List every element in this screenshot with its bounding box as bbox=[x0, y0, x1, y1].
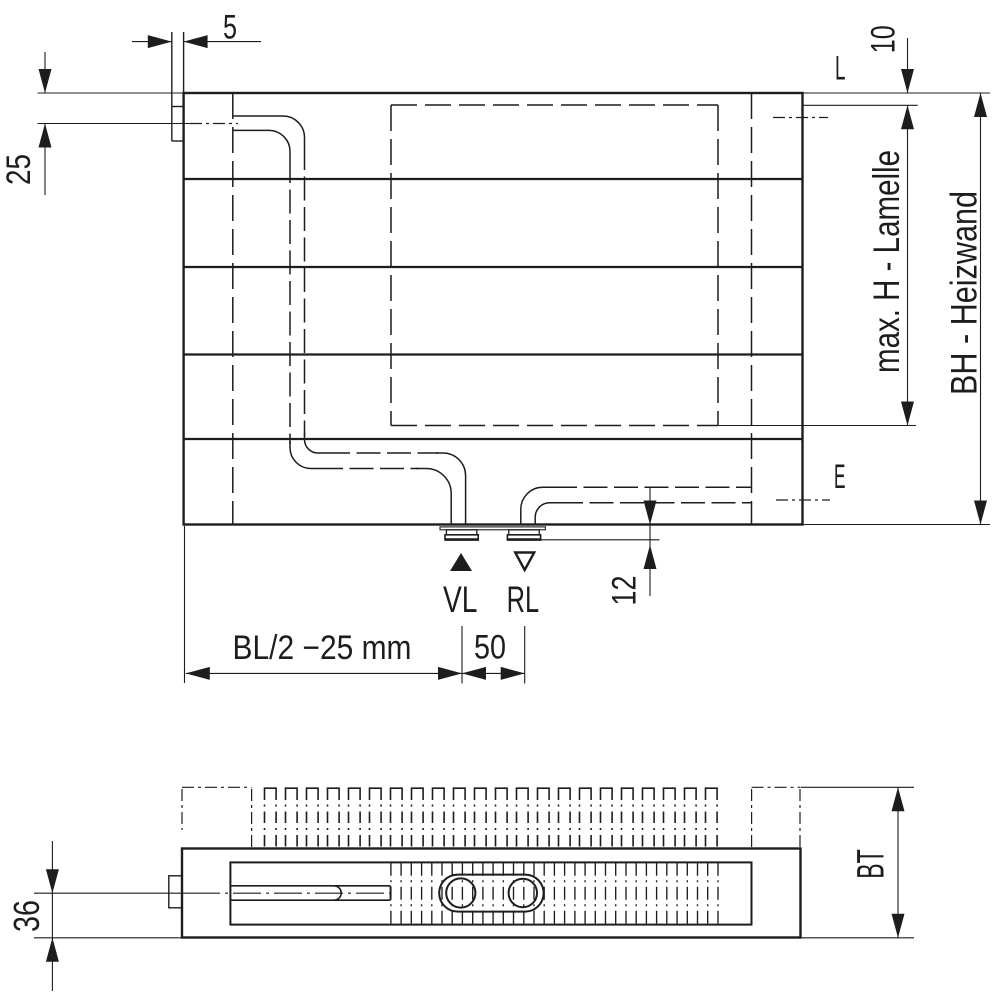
svg-text:VL: VL bbox=[443, 579, 478, 620]
svg-text:5: 5 bbox=[223, 9, 237, 47]
svg-text:50: 50 bbox=[474, 629, 506, 667]
svg-text:25: 25 bbox=[0, 154, 38, 185]
svg-text:BH - Heizwand: BH - Heizwand bbox=[944, 191, 985, 395]
svg-text:RL: RL bbox=[507, 579, 540, 620]
svg-text:max. H - Lamelle: max. H - Lamelle bbox=[866, 150, 907, 373]
svg-text:36: 36 bbox=[6, 900, 47, 932]
svg-text:10: 10 bbox=[865, 25, 903, 53]
svg-text:12: 12 bbox=[606, 576, 644, 606]
svg-text:E: E bbox=[834, 458, 846, 496]
svg-text:BT: BT bbox=[851, 849, 893, 879]
svg-text:BL/2 −25 mm: BL/2 −25 mm bbox=[233, 629, 412, 667]
svg-text:L: L bbox=[835, 50, 846, 88]
